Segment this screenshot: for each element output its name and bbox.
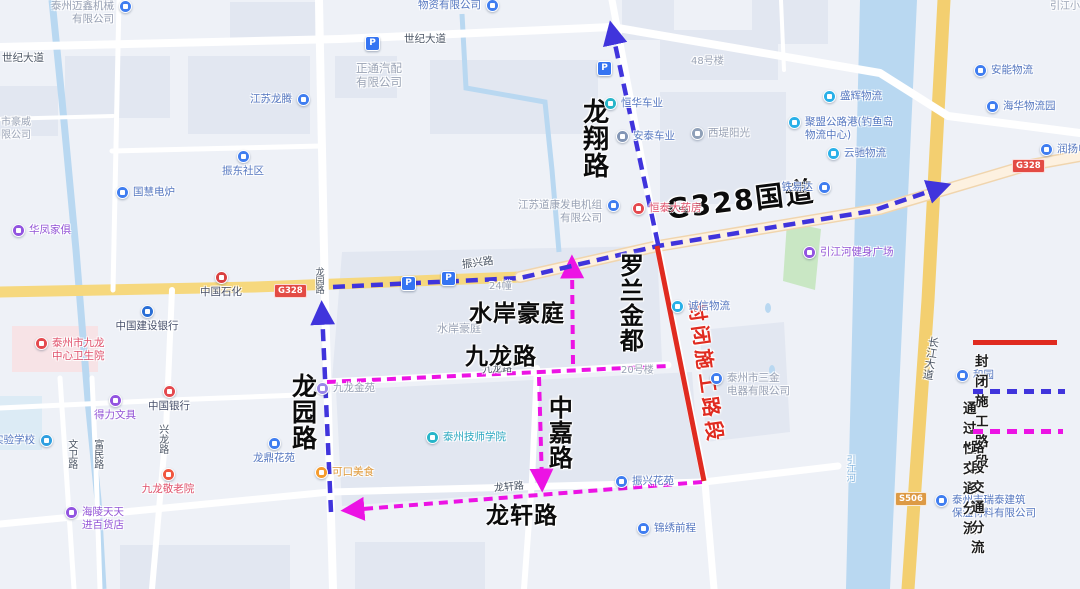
legend-section-swatch: [973, 429, 1063, 434]
legend-section-label: 路段交通分流: [971, 436, 985, 556]
map-canvas[interactable]: 世纪大道世纪大道振兴路龙园路兴龙路文卫路富民路九龙路龙轩路长江大道引江河24幢2…: [0, 0, 1080, 589]
park-area: [783, 222, 821, 290]
legend-closed-swatch: [973, 340, 1057, 345]
legend-through-swatch: [973, 389, 1065, 394]
map-graphics: [0, 0, 1080, 589]
